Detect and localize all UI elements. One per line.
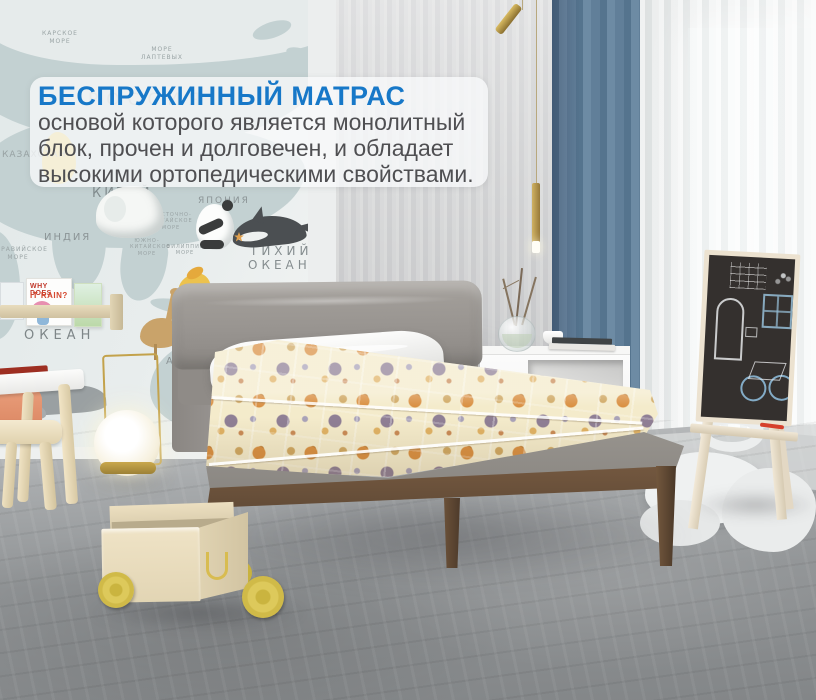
lamp-base-ring <box>100 462 156 474</box>
cart-wheel-right <box>242 576 284 618</box>
cart-wheel-left <box>98 572 134 608</box>
map-label-kara-sea: КАРСКОЕ МОРЕ <box>40 30 80 45</box>
chalk-flower-drawing <box>770 260 798 291</box>
product-scene: РОССИЯ КАРСКОЕ МОРЕ МОРЕ ЛАПТЕВЫХ КАЗАХС… <box>0 0 816 700</box>
bed-leg-mid <box>444 498 460 568</box>
map-label-south-china-sea: ЮЖНО-КИТАЙСКОЕ МОРЕ <box>130 238 164 257</box>
easel-chalkboard <box>696 250 801 427</box>
stool-top <box>0 420 62 444</box>
map-label-pacific-2: ОКЕАН <box>248 258 311 273</box>
shelf-rail <box>0 305 122 318</box>
pendant-lamp-bulb <box>532 241 540 253</box>
elephant-ear-icon <box>104 196 126 222</box>
chalk-bricks-drawing <box>730 262 767 290</box>
pendant-cord-2 <box>536 0 537 184</box>
chalk-window-drawing <box>762 294 794 330</box>
map-label-india: ИНДИЯ <box>44 232 91 245</box>
easel-shadow <box>690 492 816 518</box>
map-label-laptev-sea: МОРЕ ЛАПТЕВЫХ <box>140 46 184 61</box>
shelf-side-bracket <box>110 294 123 330</box>
pendant-cord-1 <box>522 0 523 10</box>
pendant-lamp-rod <box>532 183 540 243</box>
overlay-body: основой которого является монолитный бло… <box>38 109 483 187</box>
overlay-body-line-2: блок, прочен и долговечен, и обладает <box>38 135 483 161</box>
chalk-hourglass-drawing <box>745 327 758 338</box>
map-label-indian-ocean: ОКЕАН <box>24 328 95 344</box>
cart-rope-handle <box>206 552 228 580</box>
chalk-door-drawing <box>714 297 745 360</box>
lamp-shadow <box>84 474 176 490</box>
map-label-arabian-sea: АРАВИЙСКОЕ МОРЕ <box>0 246 40 261</box>
book-why-rain: WHY DOES IT RAIN? <box>26 278 72 326</box>
map-label-philippine-sea: ФИЛИППИНСКОЕ МОРЕ <box>166 244 204 257</box>
panda-leg-icon <box>200 240 224 249</box>
overlay-title: БЕСПРУЖИННЫЙ МАТРАС <box>38 81 406 112</box>
chalk-bike-frame <box>748 361 787 380</box>
overlay-body-line-3: высокими ортопедическими свойствами. <box>38 161 483 187</box>
overlay-body-line-1: основой которого является монолитный <box>38 109 483 135</box>
book-title-line-2: IT RAIN? <box>30 291 68 300</box>
panda-ear-icon <box>222 200 233 211</box>
